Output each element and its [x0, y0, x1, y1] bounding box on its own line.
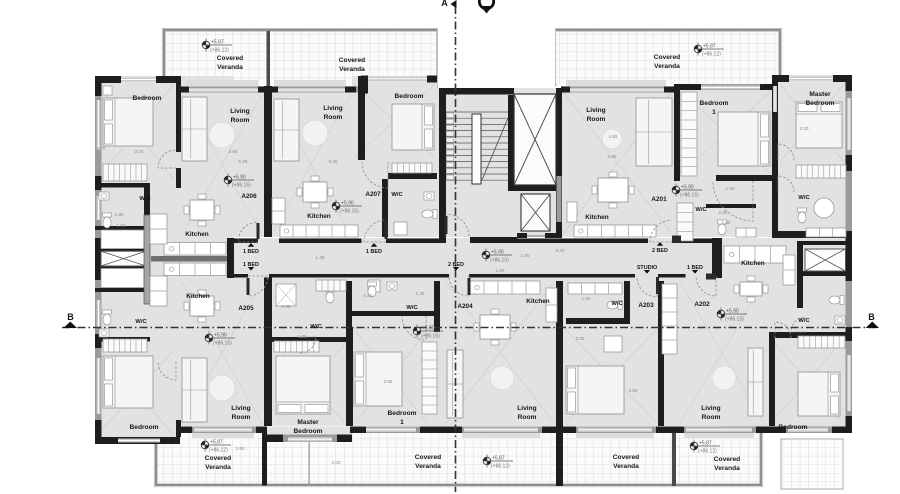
- svg-text:W/C: W/C: [798, 195, 810, 201]
- svg-text:W/C: W/C: [695, 207, 707, 213]
- svg-text:1 BED: 1 BED: [243, 249, 259, 255]
- svg-text:2.60: 2.60: [236, 446, 245, 451]
- svg-text:Living: Living: [701, 405, 720, 412]
- svg-text:5.95: 5.95: [608, 154, 617, 159]
- svg-text:Living: Living: [517, 405, 536, 412]
- svg-text:+5.87: +5.87: [492, 456, 505, 462]
- svg-text:Kitchen: Kitchen: [526, 298, 550, 305]
- svg-text:(+86.15): (+86.15): [213, 341, 232, 347]
- svg-text:B: B: [67, 312, 74, 322]
- svg-text:A202: A202: [694, 301, 710, 308]
- svg-text:1.40: 1.40: [416, 291, 425, 296]
- svg-text:3.20: 3.20: [800, 126, 809, 131]
- svg-text:B: B: [868, 312, 875, 322]
- svg-text:Living: Living: [323, 105, 342, 112]
- svg-text:2 BED: 2 BED: [652, 248, 668, 254]
- svg-text:W/C: W/C: [135, 319, 147, 325]
- svg-text:2.80: 2.80: [115, 212, 124, 217]
- svg-text:A: A: [441, 0, 448, 8]
- svg-text:2.60: 2.60: [629, 388, 638, 393]
- svg-text:(+86.12): (+86.12): [702, 52, 721, 58]
- svg-text:Master: Master: [297, 419, 319, 426]
- svg-text:1: 1: [400, 419, 404, 426]
- svg-text:Veranda: Veranda: [654, 63, 680, 70]
- svg-text:2.90: 2.90: [719, 210, 728, 215]
- svg-text:Kitchen: Kitchen: [186, 293, 210, 300]
- svg-text:(+86.15): (+86.15): [232, 183, 251, 189]
- svg-text:Veranda: Veranda: [613, 463, 639, 470]
- svg-text:(+86.12): (+86.12): [210, 48, 229, 54]
- svg-text:Room: Room: [587, 116, 606, 123]
- svg-text:Covered: Covered: [654, 54, 680, 61]
- svg-text:4.85: 4.85: [609, 134, 618, 139]
- svg-text:1: 1: [712, 109, 716, 116]
- svg-text:2.50: 2.50: [282, 304, 291, 309]
- svg-text:Veranda: Veranda: [415, 463, 441, 470]
- svg-text:Kitchen: Kitchen: [585, 214, 609, 221]
- svg-text:(+86.15): (+86.15): [340, 209, 359, 215]
- svg-text:Kitchen: Kitchen: [185, 231, 209, 238]
- svg-text:Bedroom: Bedroom: [130, 424, 159, 431]
- svg-text:1.40: 1.40: [722, 220, 731, 225]
- svg-text:(+86.15): (+86.15): [680, 193, 699, 199]
- svg-text:6.25: 6.25: [239, 159, 248, 164]
- svg-text:3.20: 3.20: [576, 336, 585, 341]
- svg-text:Covered: Covered: [205, 455, 231, 462]
- svg-text:Veranda: Veranda: [217, 64, 243, 71]
- svg-text:(+86.12): (+86.12): [209, 448, 228, 454]
- svg-text:Living: Living: [586, 107, 605, 114]
- svg-text:Covered: Covered: [714, 456, 740, 463]
- svg-text:3.20: 3.20: [556, 248, 565, 253]
- svg-text:Bedroom: Bedroom: [779, 424, 808, 431]
- svg-text:A204: A204: [457, 303, 473, 310]
- svg-text:Kitchen: Kitchen: [307, 213, 331, 220]
- svg-text:0.85: 0.85: [364, 293, 373, 298]
- svg-text:Room: Room: [232, 414, 251, 421]
- svg-text:Bedroom: Bedroom: [806, 100, 835, 107]
- svg-text:Living: Living: [230, 108, 249, 115]
- svg-text:A206: A206: [241, 193, 257, 200]
- svg-text:Bedroom: Bedroom: [388, 410, 417, 417]
- svg-text:2.00: 2.00: [332, 460, 341, 465]
- svg-text:A205: A205: [238, 305, 254, 312]
- svg-text:+5.90: +5.90: [681, 185, 694, 191]
- svg-text:Room: Room: [231, 117, 250, 124]
- svg-text:(+86.15): (+86.15): [490, 258, 509, 264]
- svg-text:W/C: W/C: [611, 301, 623, 307]
- svg-text:W/C: W/C: [406, 305, 418, 311]
- svg-text:Bedroom: Bedroom: [700, 100, 729, 107]
- svg-text:3.55: 3.55: [384, 379, 393, 384]
- svg-text:+5.90: +5.90: [422, 326, 435, 332]
- svg-text:Master: Master: [809, 91, 831, 98]
- svg-text:W/C: W/C: [310, 324, 322, 330]
- svg-text:1.90: 1.90: [496, 268, 505, 273]
- svg-text:6.25: 6.25: [329, 159, 338, 164]
- svg-text:+5.90: +5.90: [233, 175, 246, 181]
- svg-text:1.80: 1.80: [521, 253, 530, 258]
- svg-text:1.30: 1.30: [316, 255, 325, 260]
- svg-text:+5.90: +5.90: [341, 201, 354, 207]
- svg-text:+5.90: +5.90: [491, 250, 504, 256]
- svg-text:+5.90: +5.90: [726, 309, 739, 315]
- svg-text:3.20: 3.20: [135, 149, 144, 154]
- svg-text:Room: Room: [518, 414, 537, 421]
- svg-text:+5.90: +5.90: [214, 333, 227, 339]
- svg-text:W/C: W/C: [139, 196, 151, 202]
- svg-text:Veranda: Veranda: [714, 465, 740, 472]
- svg-text:(+86.12): (+86.12): [491, 464, 510, 470]
- svg-text:Room: Room: [702, 414, 721, 421]
- svg-text:Bedroom: Bedroom: [133, 95, 162, 102]
- svg-text:Covered: Covered: [339, 57, 365, 64]
- svg-text:Veranda: Veranda: [205, 464, 231, 471]
- svg-text:Veranda: Veranda: [339, 66, 365, 73]
- svg-text:1 BED: 1 BED: [366, 249, 382, 255]
- svg-text:+5.87: +5.87: [210, 440, 223, 446]
- svg-text:+5.87: +5.87: [699, 441, 712, 447]
- svg-text:+5.87: +5.87: [211, 40, 224, 46]
- svg-text:Kitchen: Kitchen: [741, 260, 765, 267]
- svg-text:A201: A201: [651, 196, 667, 203]
- svg-text:Bedroom: Bedroom: [395, 93, 424, 100]
- svg-text:(+86.15): (+86.15): [725, 317, 744, 323]
- svg-text:Covered: Covered: [415, 454, 441, 461]
- svg-text:1.30: 1.30: [298, 334, 307, 339]
- svg-text:1.60: 1.60: [117, 223, 126, 228]
- svg-text:Living: Living: [231, 405, 250, 412]
- svg-text:W/C: W/C: [798, 318, 810, 324]
- svg-text:1.40: 1.40: [726, 186, 735, 191]
- svg-text:(+86.15): (+86.15): [421, 334, 440, 340]
- svg-text:Bedroom: Bedroom: [294, 428, 323, 435]
- svg-text:Covered: Covered: [613, 454, 639, 461]
- svg-text:(+86.12): (+86.12): [698, 449, 717, 455]
- svg-text:+5.87: +5.87: [703, 44, 716, 50]
- svg-text:3.70: 3.70: [97, 146, 106, 151]
- svg-text:A203: A203: [638, 302, 654, 309]
- svg-text:3.90: 3.90: [229, 149, 238, 154]
- svg-text:Covered: Covered: [217, 55, 243, 62]
- svg-text:1.65: 1.65: [582, 296, 591, 301]
- svg-text:A207: A207: [365, 191, 381, 198]
- svg-text:Room: Room: [324, 114, 343, 121]
- svg-text:W/C: W/C: [391, 192, 403, 198]
